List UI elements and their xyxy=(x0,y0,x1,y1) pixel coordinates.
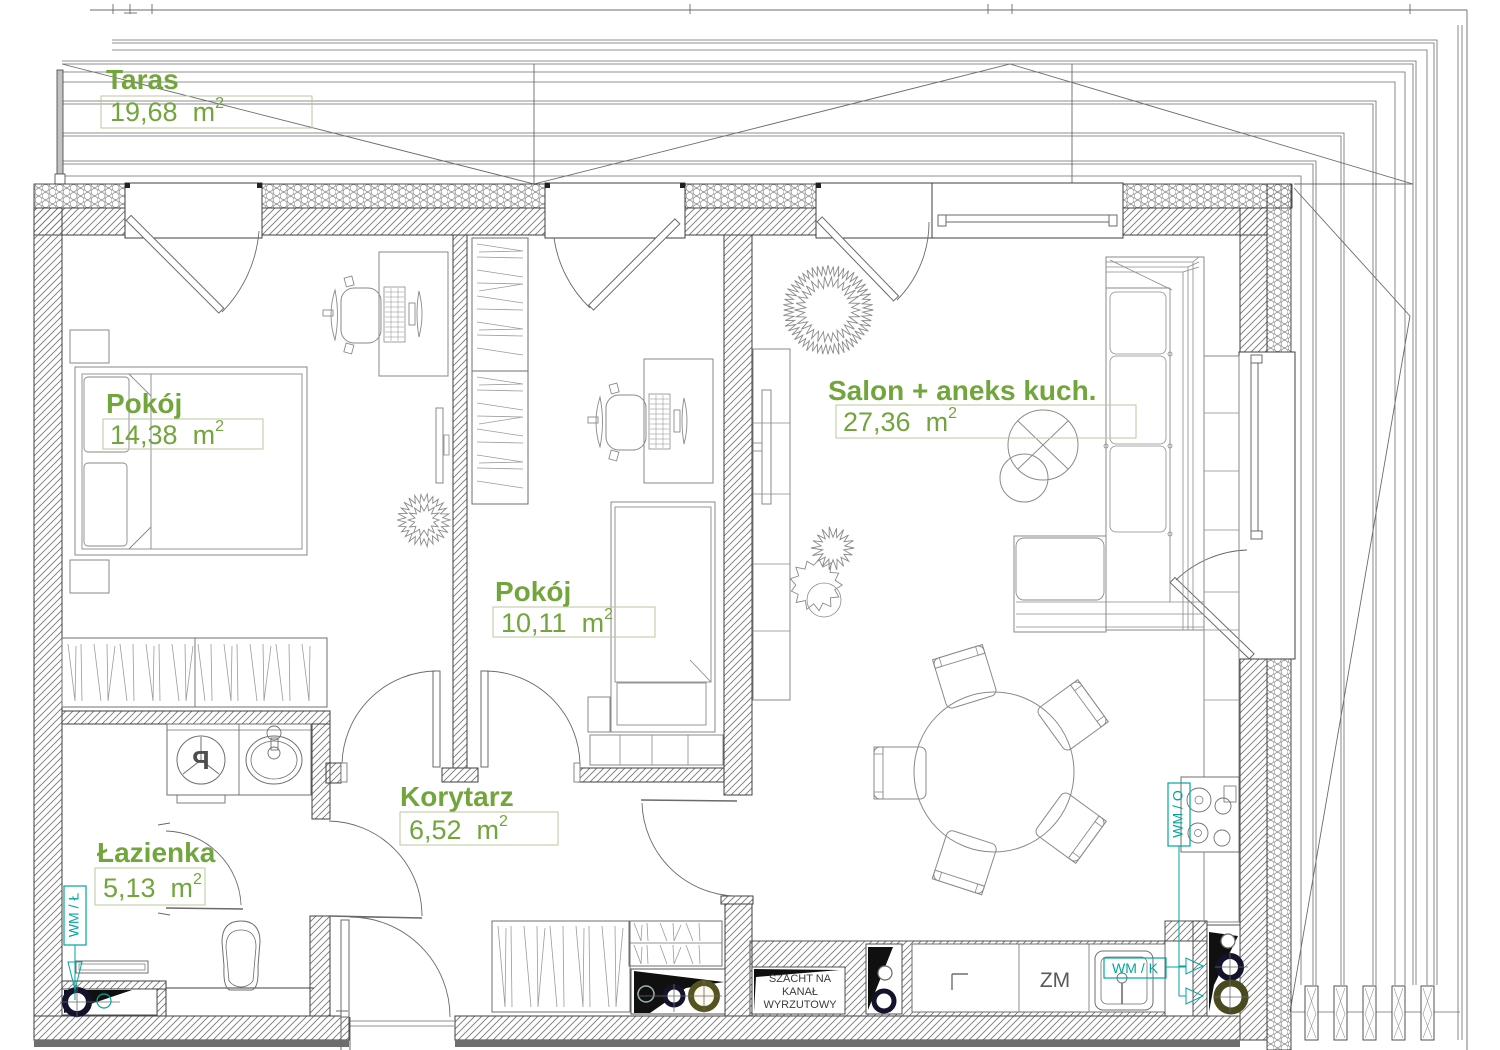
svg-text:6,52 m2: 6,52 m2 xyxy=(409,813,508,845)
svg-text:Pokój: Pokój xyxy=(106,388,182,419)
svg-text:ZM: ZM xyxy=(1040,969,1070,992)
svg-text:Łazienka: Łazienka xyxy=(97,837,216,868)
svg-text:14,38 m2: 14,38 m2 xyxy=(110,418,224,450)
svg-text:5,13 m2: 5,13 m2 xyxy=(103,871,202,903)
svg-text:WM / K: WM / K xyxy=(1112,960,1159,976)
svg-text:KANAŁ: KANAŁ xyxy=(782,986,818,998)
svg-text:WM / Ł: WM / Ł xyxy=(66,893,82,938)
svg-text:Pokój: Pokój xyxy=(495,576,571,607)
svg-text:P: P xyxy=(192,745,209,775)
svg-text:Salon + aneks kuch.: Salon + aneks kuch. xyxy=(828,375,1096,406)
svg-text:19,68 m2: 19,68 m2 xyxy=(110,95,224,127)
svg-text:WYRZUTOWY: WYRZUTOWY xyxy=(763,999,837,1011)
svg-text:Taras: Taras xyxy=(106,64,179,95)
svg-text:SZACHT NA: SZACHT NA xyxy=(769,973,832,985)
svg-text:WM / O: WM / O xyxy=(1170,790,1186,838)
svg-text:10,11 m2: 10,11 m2 xyxy=(501,606,613,638)
svg-text:Korytarz: Korytarz xyxy=(400,781,514,812)
svg-text:27,36 m2: 27,36 m2 xyxy=(843,405,957,437)
